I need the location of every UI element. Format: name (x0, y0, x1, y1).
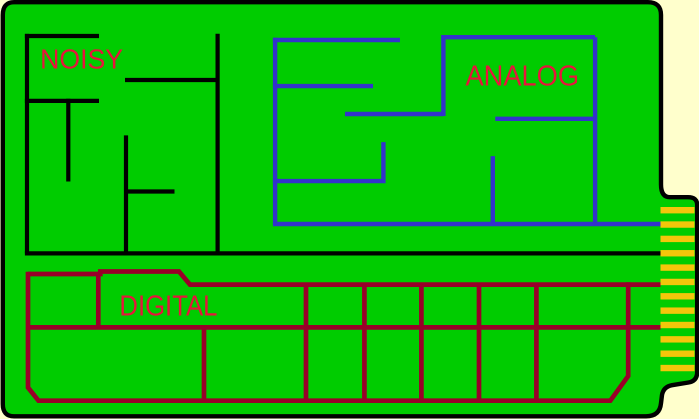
svg-text:NOISY: NOISY (40, 44, 123, 75)
svg-text:DIGITAL: DIGITAL (119, 290, 217, 322)
svg-text:ANALOG: ANALOG (466, 60, 580, 92)
